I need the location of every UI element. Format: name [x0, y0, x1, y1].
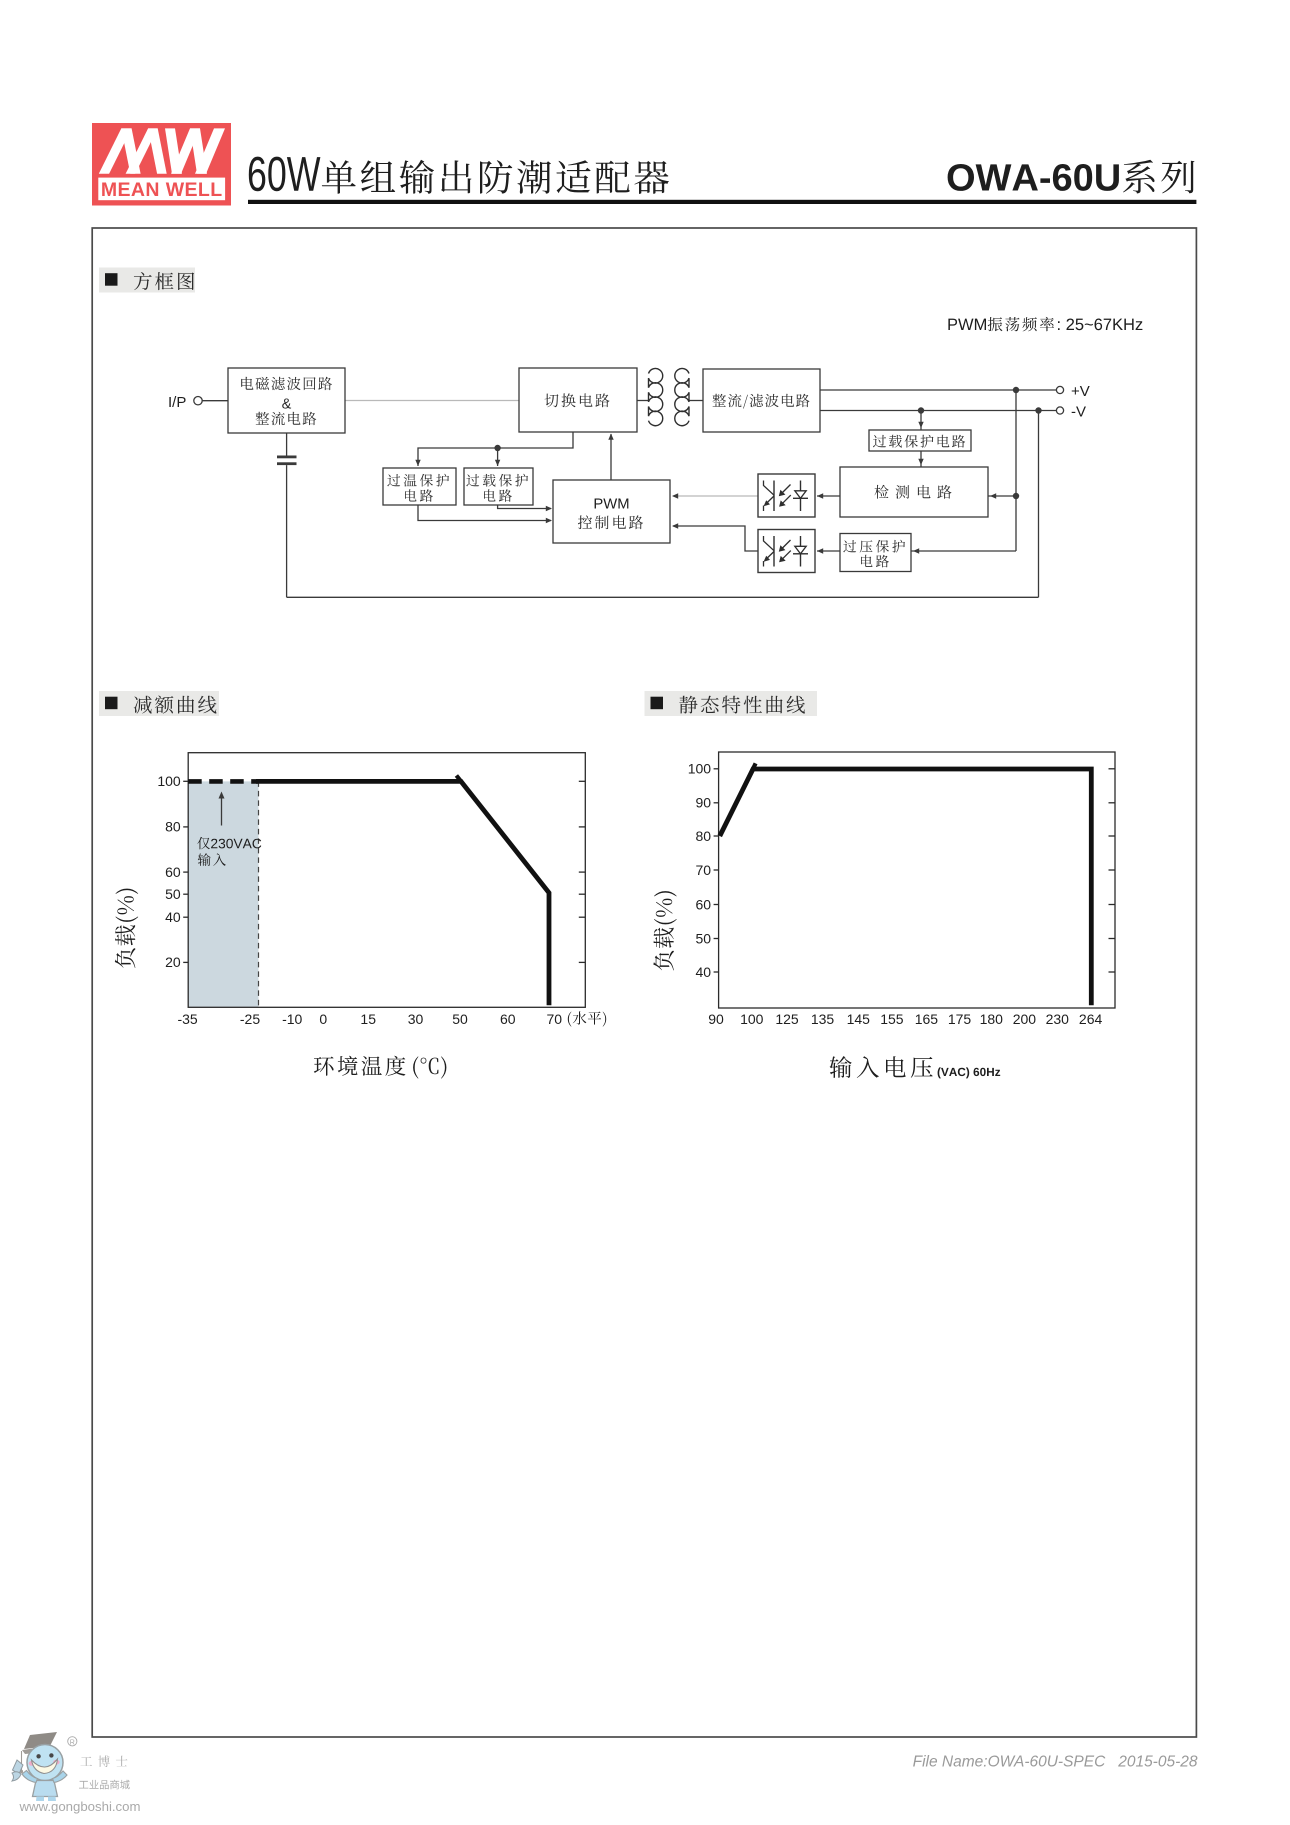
- svg-text:60: 60: [165, 864, 181, 880]
- svg-text:www.gongboshi.com: www.gongboshi.com: [19, 1799, 141, 1814]
- svg-text:165: 165: [915, 1011, 939, 1027]
- svg-text:135: 135: [811, 1011, 835, 1027]
- svg-text:I/P: I/P: [168, 394, 186, 411]
- svg-text:20: 20: [165, 954, 181, 970]
- svg-text:145: 145: [847, 1011, 871, 1027]
- svg-text:230: 230: [1046, 1011, 1070, 1027]
- svg-text:90: 90: [708, 1011, 724, 1027]
- svg-text:-35: -35: [177, 1011, 197, 1027]
- svg-text:80: 80: [696, 828, 712, 844]
- svg-text:100: 100: [688, 761, 712, 777]
- svg-text:40: 40: [165, 909, 181, 925]
- svg-text:50: 50: [452, 1011, 468, 1027]
- svg-text:40: 40: [696, 964, 712, 980]
- svg-text:-V: -V: [1071, 404, 1086, 421]
- svg-text:50: 50: [165, 886, 181, 902]
- svg-text:File Name:OWA-60U-SPEC 2015-: File Name:OWA-60U-SPEC 2015-05-28: [913, 1754, 1198, 1771]
- svg-text:50: 50: [696, 930, 712, 946]
- svg-text:0: 0: [319, 1011, 327, 1027]
- svg-text:125: 125: [775, 1011, 799, 1027]
- svg-text:80: 80: [165, 819, 181, 835]
- svg-text:+V: +V: [1071, 383, 1090, 400]
- svg-text:-25: -25: [240, 1011, 260, 1027]
- svg-text:180: 180: [980, 1011, 1004, 1027]
- svg-text:100: 100: [740, 1011, 764, 1027]
- svg-text:155: 155: [880, 1011, 904, 1027]
- svg-text:60: 60: [696, 896, 712, 912]
- svg-text:90: 90: [696, 795, 712, 811]
- svg-text:60: 60: [500, 1011, 516, 1027]
- svg-text:100: 100: [157, 773, 181, 789]
- svg-text:MEAN WELL: MEAN WELL: [101, 179, 223, 201]
- svg-text:70: 70: [547, 1011, 563, 1027]
- svg-text:264: 264: [1079, 1011, 1103, 1027]
- svg-text:200: 200: [1013, 1011, 1037, 1027]
- svg-text:15: 15: [360, 1011, 376, 1027]
- svg-text:R: R: [70, 1739, 75, 1746]
- svg-text:PWM: PWM: [593, 497, 629, 513]
- svg-text:70: 70: [696, 862, 712, 878]
- svg-text:-10: -10: [282, 1011, 302, 1027]
- svg-text:175: 175: [948, 1011, 972, 1027]
- svg-text:30: 30: [408, 1011, 424, 1027]
